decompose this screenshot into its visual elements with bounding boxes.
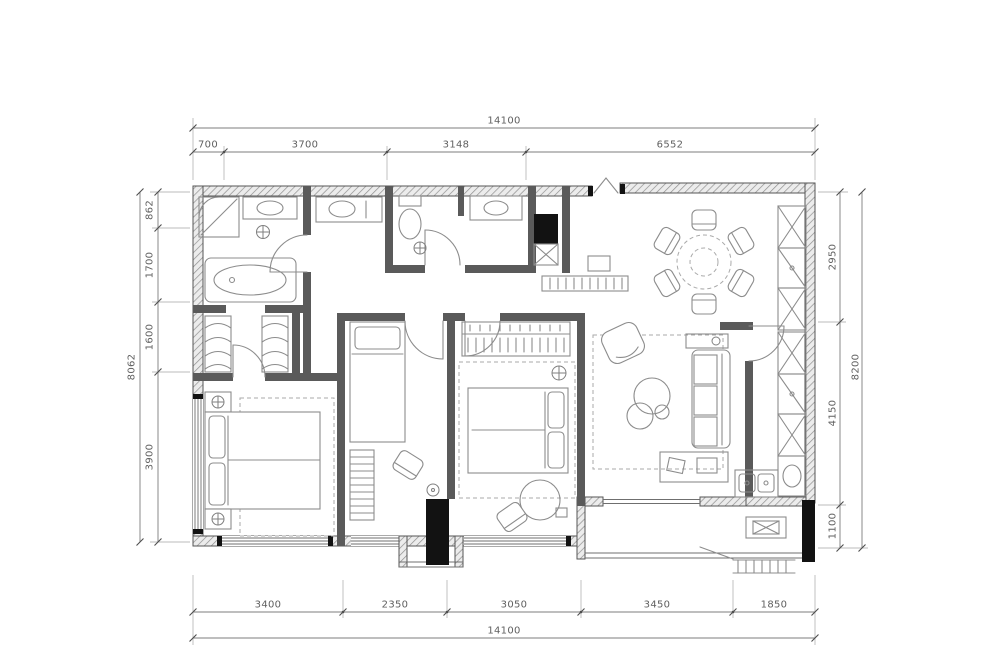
sink-icon — [470, 196, 522, 220]
dining-area — [652, 206, 806, 330]
dim-right-seg-1: 4150 — [828, 400, 839, 427]
chair-icon — [495, 501, 529, 534]
dim-right-seg-0: 2950 — [828, 244, 839, 271]
dining-chair-icon — [692, 210, 716, 230]
tv-bench-icon — [660, 452, 728, 482]
chair-icon — [391, 449, 425, 481]
floor-lamp-icon — [427, 484, 439, 496]
nightstand-icon — [205, 392, 231, 412]
dim-left-seg-2: 1600 — [145, 324, 156, 351]
entry-console — [542, 256, 628, 291]
door-bedroom2 — [405, 321, 443, 359]
utility-shaft — [534, 214, 558, 265]
hanging-wardrobe-icon — [462, 322, 570, 356]
window-bedroom1 — [217, 536, 333, 546]
storage-cabinets-icon — [778, 206, 806, 330]
dining-chair-icon — [726, 226, 755, 257]
kitchen-sink-icon — [735, 470, 778, 497]
dining-chair-icon — [652, 268, 681, 299]
dim-top-seg-2: 3148 — [443, 140, 470, 151]
floor-plan: 14100 700 3700 3148 6552 3400 2350 3050 … — [0, 0, 1000, 666]
double-bed-icon — [205, 412, 320, 509]
ceiling-lamp-icon — [552, 366, 566, 380]
dining-chair-icon — [692, 294, 716, 314]
door-bath2 — [425, 230, 460, 265]
living-room — [593, 320, 730, 482]
vanity-sink-icon — [243, 197, 297, 219]
dim-left-total: 8062 — [127, 354, 138, 381]
dim-bottom-seg-0: 3400 — [255, 600, 282, 611]
ac-grate-icon — [733, 560, 795, 573]
dim-bottom-seg-2: 3050 — [501, 600, 528, 611]
walk-in-closet — [205, 316, 288, 372]
dim-top-total: 14100 — [487, 116, 520, 127]
ceiling-lamp-icon — [414, 242, 426, 254]
dim-top-seg-1: 3700 — [292, 140, 319, 151]
entrance-door-icon — [588, 178, 625, 196]
dim-right-total: 8200 — [851, 354, 862, 381]
dim-bottom-seg-4: 1850 — [761, 600, 788, 611]
dim-bottom-seg-1: 2350 — [382, 600, 409, 611]
dining-table-icon — [677, 235, 731, 289]
corridor-vanity — [316, 197, 382, 222]
desk-table-icon — [520, 480, 567, 520]
kitchen-cabinets-icon — [778, 332, 806, 496]
bedroom2 — [350, 322, 439, 520]
dim-right-seg-2: 1100 — [828, 513, 839, 540]
single-bed-icon — [350, 322, 405, 442]
bay-window — [399, 499, 463, 567]
dim-bottom-total: 14100 — [487, 626, 520, 637]
washer-icon — [746, 517, 786, 538]
dim-left-seg-3: 3900 — [145, 444, 156, 471]
nightstand-icon — [205, 509, 231, 529]
dining-chair-icon — [652, 226, 681, 257]
wardrobe-icon — [262, 316, 288, 372]
balcony — [577, 497, 815, 573]
dim-left-seg-0: 862 — [145, 200, 156, 220]
window-bedroom2 — [351, 536, 403, 546]
dining-chair-icon — [726, 268, 755, 299]
console-table-icon — [686, 334, 728, 348]
wardrobe-icon — [205, 316, 231, 372]
dim-top-seg-0: 700 — [198, 140, 218, 151]
bathtub-icon — [205, 258, 296, 302]
ceiling-lamp-icon — [257, 226, 270, 239]
master-bathroom — [199, 197, 297, 302]
coffee-table-icon — [627, 378, 670, 429]
door-closet — [233, 345, 265, 377]
dim-left-seg-1: 1700 — [145, 252, 156, 279]
door-master-bath — [270, 235, 307, 272]
door-kitchen — [749, 326, 784, 361]
dim-bottom-seg-3: 3450 — [644, 600, 671, 611]
double-bed-icon — [468, 388, 568, 473]
toilet-icon — [399, 196, 421, 239]
master-bedroom — [205, 392, 334, 536]
window-left — [193, 394, 203, 534]
shower-icon — [199, 197, 239, 237]
sofa-icon — [692, 350, 730, 448]
shelf-unit-icon — [350, 450, 374, 520]
armchair-icon — [599, 320, 648, 367]
dim-top-seg-3: 6552 — [657, 140, 684, 151]
window-bedroom3 — [464, 536, 571, 546]
